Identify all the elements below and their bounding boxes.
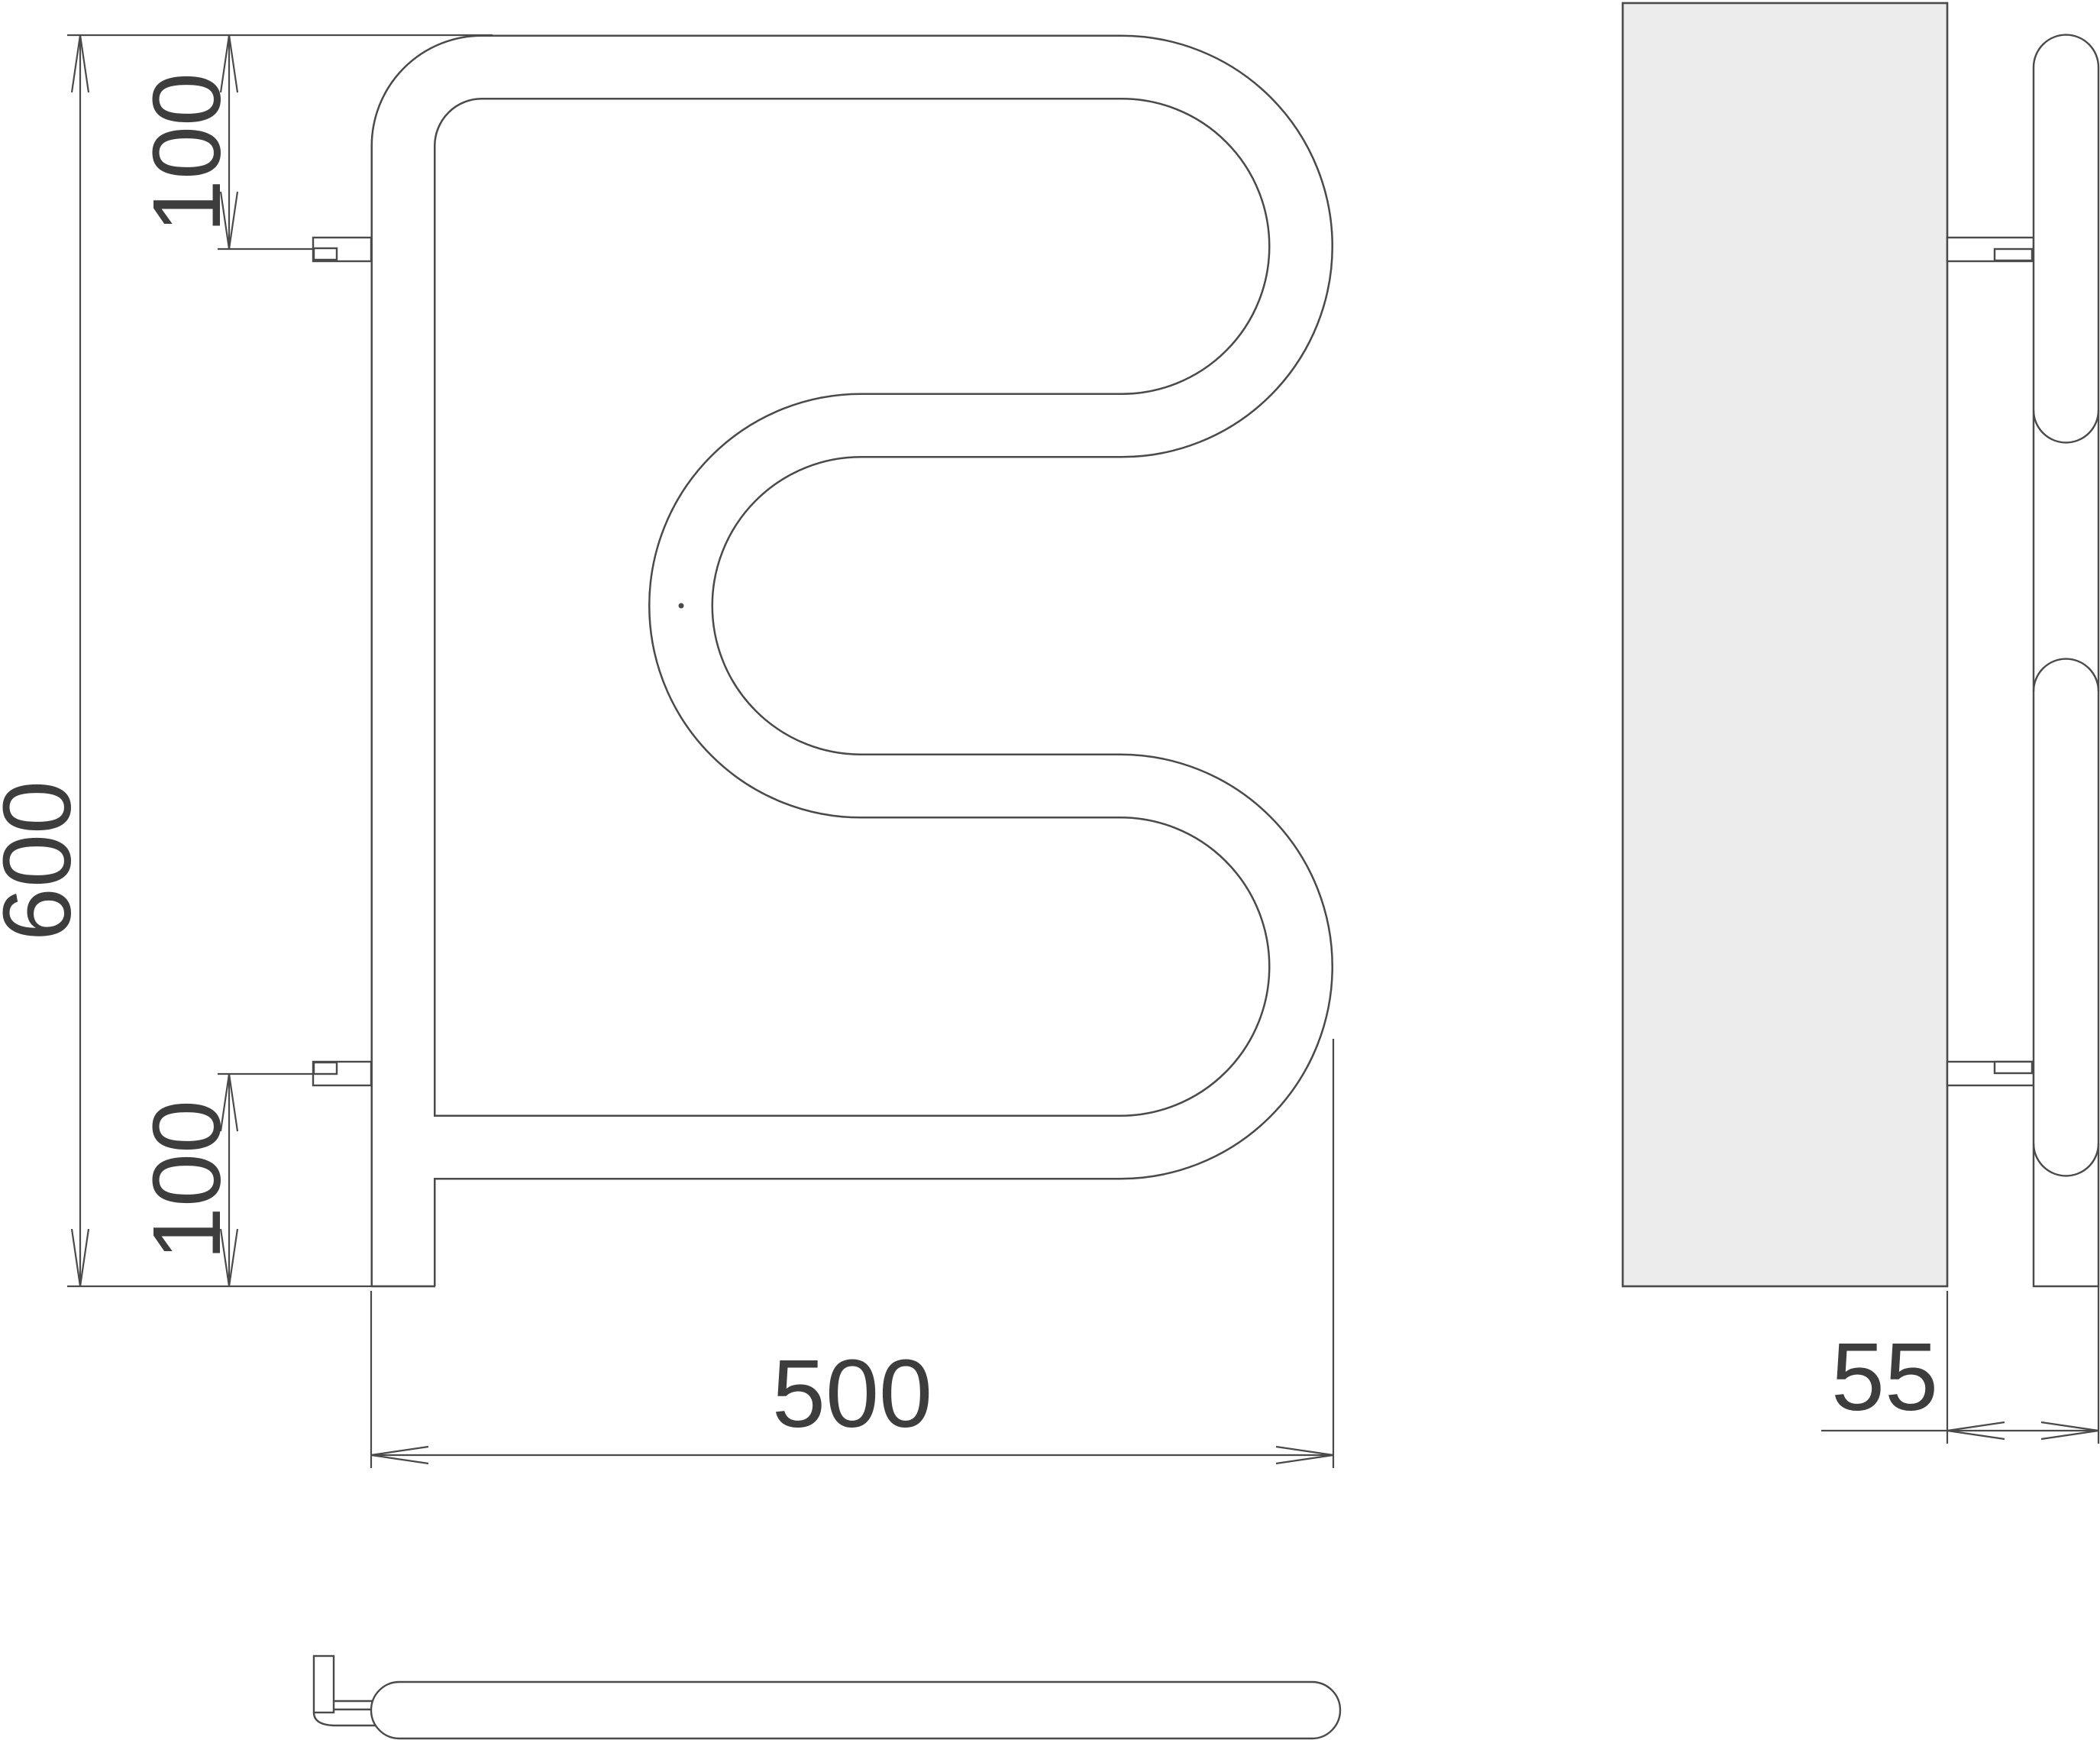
side-tube <box>2034 35 2098 1286</box>
plan-tube-capsule <box>371 1682 1340 1738</box>
side-tube-silhouette <box>2034 35 2098 1286</box>
front-view: 600 100 100 500 <box>0 35 1333 1468</box>
technical-drawing-canvas: 600 100 100 500 <box>0 0 2100 1740</box>
bracket-clip <box>1995 1062 2032 1073</box>
wall-panel <box>1623 3 1947 1286</box>
front-top-bracket <box>313 238 371 261</box>
dimension-bottom-offset: 100 <box>133 1074 314 1286</box>
side-top-bracket <box>1947 238 2034 261</box>
bracket-foot-curve <box>314 1713 378 1725</box>
bracket-clip <box>314 248 337 260</box>
side-bottom-bracket <box>1947 1062 2034 1085</box>
dimension-label-500: 500 <box>772 1340 932 1447</box>
dimension-depth: 55 <box>1821 1286 2098 1444</box>
tube-outline <box>403 67 1301 1286</box>
dimension-label-100-bottom: 100 <box>133 1100 241 1260</box>
drawing-stage: 600 100 100 500 <box>0 0 2100 1740</box>
tube-core <box>403 67 1301 1286</box>
bend-center-mark <box>679 603 684 609</box>
front-bottom-bracket <box>313 1062 371 1085</box>
bracket-clip <box>314 1062 337 1074</box>
dimension-label-600: 600 <box>0 781 91 941</box>
side-view: 55 <box>1623 3 2098 1444</box>
bracket-clip <box>1995 249 2032 260</box>
towel-rail-tube <box>371 67 1301 1286</box>
plan-view <box>314 1656 1340 1738</box>
dimension-top-offset: 100 <box>133 35 314 249</box>
dimension-label-55: 55 <box>1831 1323 1938 1431</box>
bracket-plate <box>314 1656 334 1713</box>
plan-bracket <box>314 1656 378 1725</box>
dimension-label-100-top: 100 <box>133 73 241 233</box>
